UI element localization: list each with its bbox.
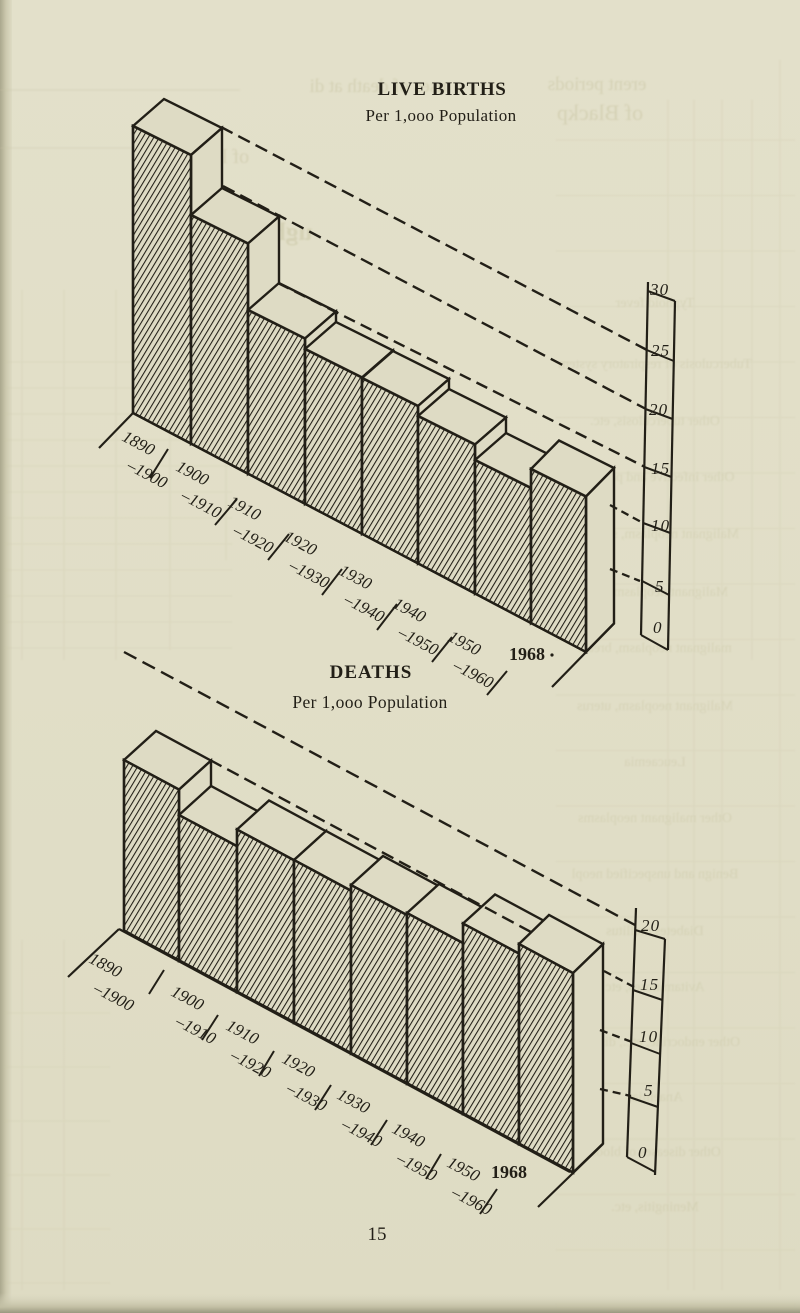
svg-text:Per 1,ooo Population: Per 1,ooo Population <box>292 692 447 712</box>
svg-text:Anaemias: Anaemias <box>627 1090 683 1105</box>
svg-text:Leucaemia: Leucaemia <box>624 755 686 770</box>
svg-text:1968: 1968 <box>491 1162 527 1182</box>
svg-text:of Blackp: of Blackp <box>557 100 643 125</box>
svg-text:1968: 1968 <box>509 644 545 664</box>
svg-text:0: 0 <box>653 618 663 637</box>
svg-text:5: 5 <box>655 577 665 596</box>
svg-text:Per 1,ooo Population: Per 1,ooo Population <box>365 106 516 125</box>
svg-text:Benign and unspecified neopl: Benign and unspecified neopl <box>571 867 738 882</box>
svg-text:15: 15 <box>651 459 670 478</box>
svg-text:20: 20 <box>641 916 660 935</box>
svg-text:25: 25 <box>651 341 670 360</box>
svg-text:15: 15 <box>368 1224 387 1245</box>
svg-text:10: 10 <box>639 1027 658 1046</box>
svg-text:30: 30 <box>649 280 669 299</box>
svg-text:Other malignant neoplasms: Other malignant neoplasms <box>578 811 732 826</box>
svg-text:0: 0 <box>638 1143 648 1162</box>
svg-text:erent periods: erent periods <box>548 74 647 95</box>
svg-text:DEATHS: DEATHS <box>330 662 413 683</box>
svg-text:Meningitis, etc.: Meningitis, etc. <box>611 1200 699 1215</box>
svg-text:5: 5 <box>644 1081 654 1100</box>
svg-text:LIVE BIRTHS: LIVE BIRTHS <box>378 79 507 100</box>
svg-text:15: 15 <box>640 975 659 994</box>
svg-text:Malignant neoplasm, uterus: Malignant neoplasm, uterus <box>577 699 733 714</box>
svg-text:20: 20 <box>649 400 668 419</box>
svg-text:10: 10 <box>651 516 670 535</box>
